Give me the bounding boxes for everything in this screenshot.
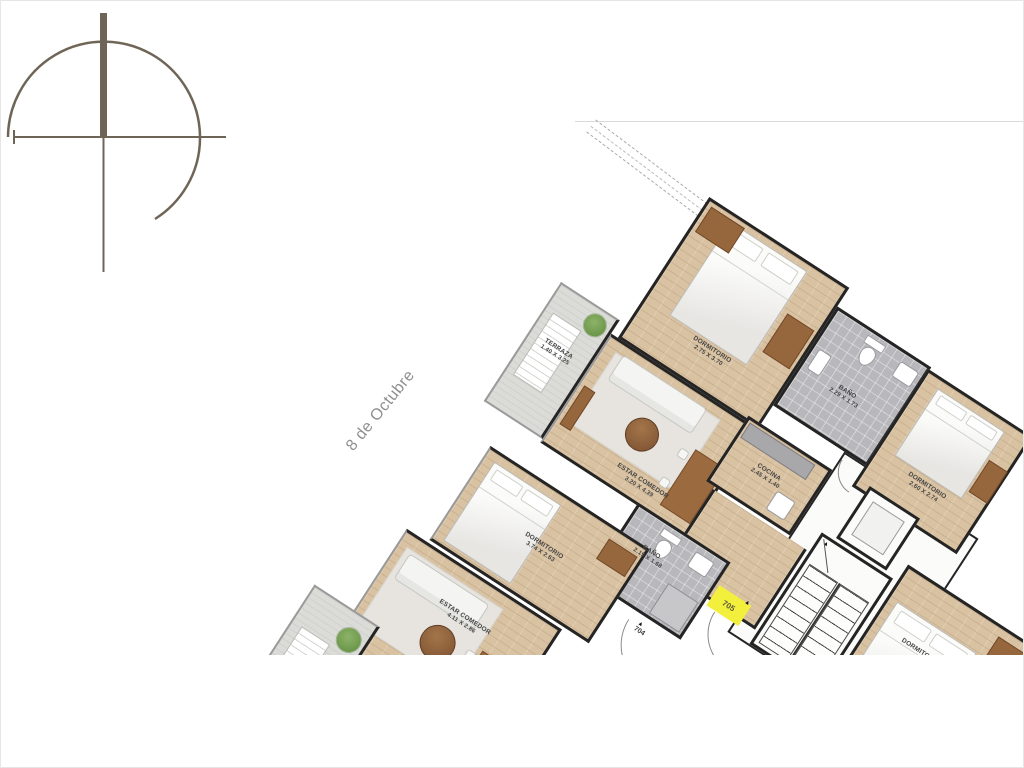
sink-icon (891, 361, 919, 388)
boundary-line (586, 119, 715, 222)
floorplan-sheet: { "scene": { "street_name": "8 de Octubr… (0, 0, 1024, 768)
sink-icon (687, 551, 715, 578)
shower-icon (649, 583, 699, 633)
sheet-crop-mask (0, 655, 1024, 768)
plant-icon (332, 623, 365, 656)
plant-icon (580, 310, 610, 340)
street-name-label: 8 de Octubre (336, 359, 426, 464)
sheet-edge-line (575, 121, 1024, 122)
room-label: BAÑO 2.29 X 1.73 (807, 367, 882, 423)
north-arrow-icon (0, 0, 250, 290)
